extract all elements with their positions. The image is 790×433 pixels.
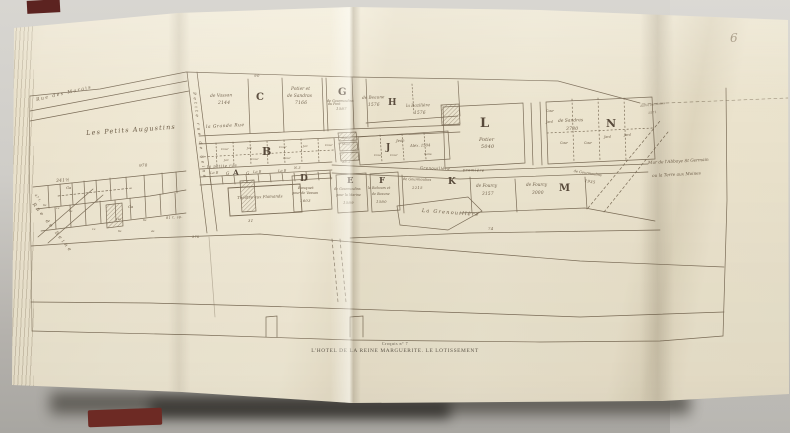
fold-crease-center bbox=[330, 0, 374, 433]
fold-crease-left bbox=[168, 0, 190, 433]
foldout-plate-paper: Rue des MaraisPetite rue de SeineRue de … bbox=[0, 0, 790, 433]
book-cover-edge-bottom bbox=[88, 408, 163, 428]
photo-of-folded-map-plate: Rue des MaraisPetite rue de SeineRue de … bbox=[0, 0, 790, 433]
book-cover-edge-top bbox=[27, 0, 61, 14]
fold-crease-right bbox=[640, 0, 674, 433]
paper-shadow-dark bbox=[150, 400, 450, 418]
